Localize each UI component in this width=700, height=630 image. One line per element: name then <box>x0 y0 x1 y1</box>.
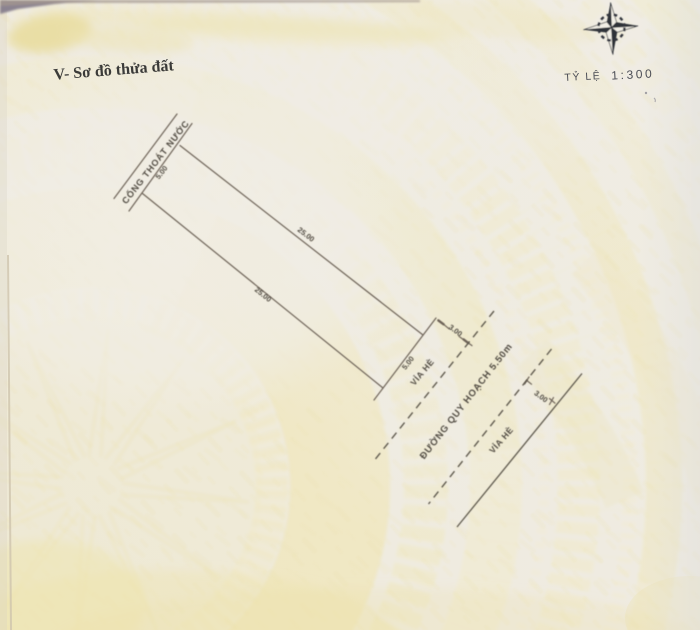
svg-text:1:300: 1:300 <box>611 66 655 82</box>
svg-text:TỶ LỆ: TỶ LỆ <box>564 69 601 84</box>
